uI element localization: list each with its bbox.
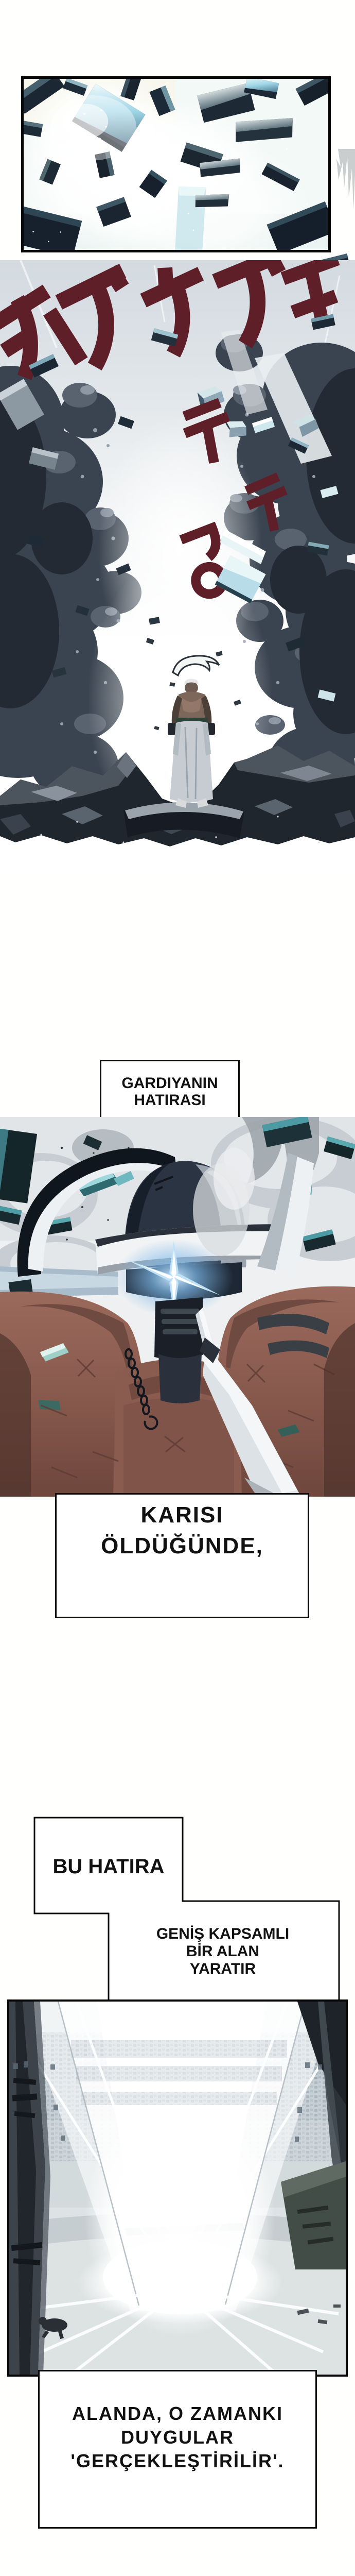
svg-text:GENİŞ KAPSAMLI: GENİŞ KAPSAMLI	[156, 1925, 289, 1942]
svg-text:YARATIR: YARATIR	[190, 1960, 256, 1977]
svg-text:BİR ALAN: BİR ALAN	[186, 1943, 259, 1960]
svg-text:BU HATIRA: BU HATIRA	[52, 1855, 164, 1878]
